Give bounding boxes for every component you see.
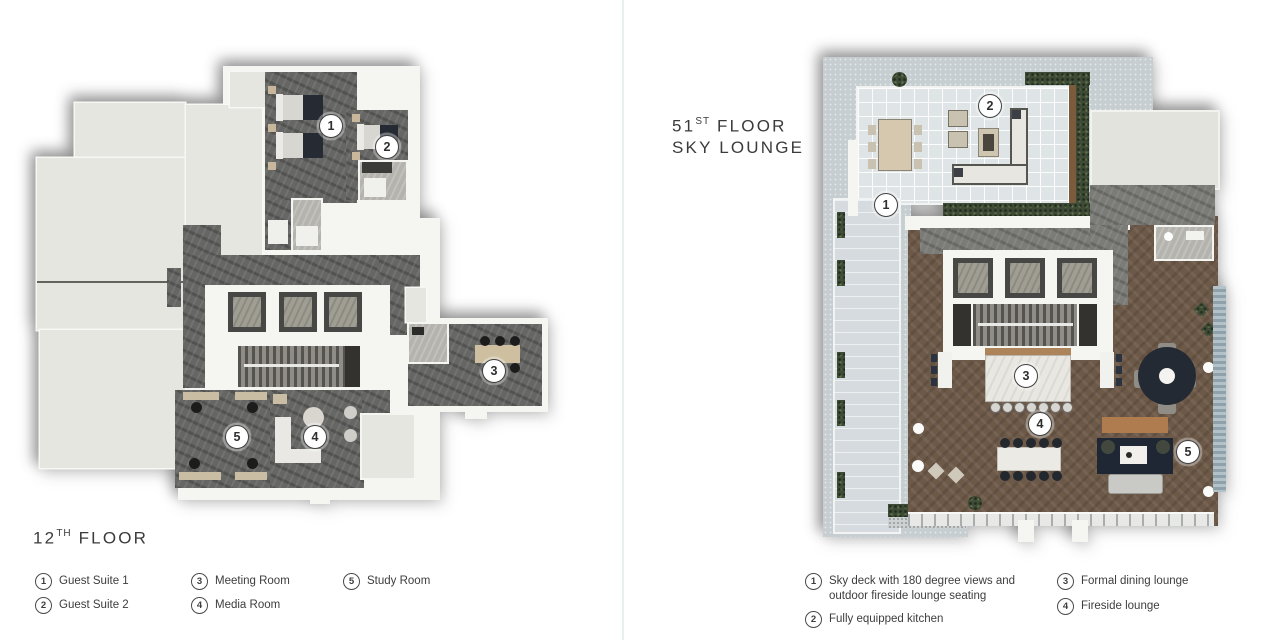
- nightstand: [352, 114, 360, 122]
- banquette: [1100, 352, 1114, 388]
- dining-chair: [1013, 471, 1023, 481]
- planter: [837, 260, 845, 286]
- right-plan-title: 51ST FLOOR SKY LOUNGE: [672, 112, 804, 158]
- planter: [837, 400, 845, 426]
- column: [167, 268, 181, 307]
- banquette-chair: [1116, 366, 1122, 374]
- legend-label: Fully equipped kitchen: [829, 611, 943, 627]
- bar-stool: [990, 402, 1001, 413]
- legend-label: Guest Suite 2: [59, 597, 129, 613]
- floorplan-12th-floor: 1 2 3 4 5: [28, 58, 553, 508]
- legend-item-guest-suite-1: 1 Guest Suite 1: [35, 573, 129, 590]
- stair-landing: [1079, 304, 1097, 346]
- banquette: [938, 352, 952, 388]
- planter: [837, 472, 845, 498]
- elevator-cell: [1057, 258, 1097, 298]
- storage-room: [362, 415, 414, 478]
- desk-chair: [191, 402, 202, 413]
- table-decor: [1126, 452, 1132, 458]
- outdoor-chair: [914, 142, 922, 152]
- planter-soil: [1069, 85, 1076, 203]
- planter: [837, 212, 845, 238]
- legend-item-media-room: 4 Media Room: [191, 597, 280, 614]
- outdoor-chair: [868, 159, 876, 169]
- bed-headboard: [357, 124, 364, 150]
- sofa: [275, 449, 321, 463]
- legend-number: 2: [805, 611, 822, 628]
- desk-chair: [189, 458, 200, 469]
- legend-number: 3: [1057, 573, 1074, 590]
- potted-plant: [968, 496, 982, 510]
- legend-label: Guest Suite 1: [59, 573, 129, 589]
- shrub: [892, 72, 907, 87]
- banquette-chair: [931, 366, 937, 374]
- floorplan-51st-floor: 1 2 3 4 5: [820, 52, 1230, 544]
- nightstand: [268, 86, 276, 94]
- left-title-number: 12: [33, 529, 56, 548]
- kitchen-counter: [985, 348, 1071, 355]
- desk: [235, 392, 267, 400]
- elevator-cell: [279, 292, 317, 332]
- outdoor-dining-table: [878, 119, 912, 171]
- unit-area: [37, 158, 185, 330]
- bed-duvet: [303, 95, 323, 120]
- bar-stool: [1050, 402, 1061, 413]
- legend-number: 5: [343, 573, 360, 590]
- legend-label: Sky deck with 180 degree views and outdo…: [829, 573, 1025, 604]
- hedge: [1076, 72, 1089, 207]
- bar-stool: [1062, 402, 1073, 413]
- legend-number: 4: [1057, 598, 1074, 615]
- legend-item-sky-deck: 1 Sky deck with 180 degree views and out…: [805, 573, 1025, 604]
- outdoor-chair: [868, 142, 876, 152]
- elevator-cell: [1005, 258, 1045, 298]
- vanity: [1186, 231, 1204, 240]
- bath-fixture: [344, 406, 357, 419]
- elevator-cell: [953, 258, 993, 298]
- plan-marker-2: 2: [978, 94, 1002, 118]
- left-title-ordinal: TH: [56, 528, 71, 539]
- legend-label: Meeting Room: [215, 573, 290, 589]
- wall-tab: [310, 496, 330, 504]
- right-title-number: 51: [672, 117, 695, 136]
- bed-headboard: [276, 132, 283, 159]
- cushion: [954, 168, 963, 177]
- dining-chair: [1000, 471, 1010, 481]
- bed-headboard: [276, 94, 283, 121]
- plan-marker-4: 4: [303, 425, 327, 449]
- deck-wall: [848, 140, 858, 216]
- elevator-cell: [228, 292, 266, 332]
- panel-divider: [622, 0, 624, 640]
- deck-pot: [912, 460, 924, 472]
- desk-chair: [247, 402, 258, 413]
- toilet: [1164, 232, 1173, 241]
- plan-marker-3: 3: [1014, 364, 1038, 388]
- right-title-line2: SKY LOUNGE: [672, 138, 804, 157]
- legend-label: Study Room: [367, 573, 430, 589]
- legend-number: 1: [35, 573, 52, 590]
- desk: [179, 472, 221, 480]
- bar-stool: [1026, 402, 1037, 413]
- bath-fixture: [344, 429, 357, 442]
- corridor: [1090, 185, 1215, 225]
- bar-stool: [1002, 402, 1013, 413]
- chair: [495, 336, 505, 346]
- legend-item-meeting-room: 3 Meeting Room: [191, 573, 290, 590]
- coffee-table: [1120, 446, 1147, 464]
- plan-marker-4: 4: [1028, 412, 1052, 436]
- bathtub: [296, 226, 318, 246]
- window-wall: [908, 512, 1214, 526]
- stair-rail: [244, 364, 339, 367]
- legend-number: 4: [191, 597, 208, 614]
- nightstand: [268, 162, 276, 170]
- plan-marker-2: 2: [375, 135, 399, 159]
- banquette-chair: [931, 354, 937, 362]
- legend-item-guest-suite-2: 2 Guest Suite 2: [35, 597, 129, 614]
- outdoor-armchair: [948, 131, 968, 148]
- legend-item-kitchen: 2 Fully equipped kitchen: [805, 611, 943, 628]
- dining-table: [997, 447, 1061, 471]
- wall-tab: [237, 488, 259, 500]
- plan-marker-1: 1: [319, 114, 343, 138]
- right-title-word: FLOOR: [717, 117, 787, 136]
- passage: [406, 288, 426, 322]
- dining-chair: [1013, 438, 1023, 448]
- dining-chair: [1039, 471, 1049, 481]
- vanity: [412, 327, 424, 335]
- desk: [183, 392, 219, 400]
- bathtub: [268, 220, 288, 244]
- round-table-center: [1159, 368, 1175, 384]
- unit-area: [75, 103, 185, 163]
- dresser: [362, 162, 392, 173]
- floorplan-brochure-page: 1 2 3 4 5 12TH FLOOR 1 Guest Suite 1 2 G…: [0, 0, 1280, 640]
- elevator-cell: [324, 292, 362, 332]
- lounge-armchair: [1101, 440, 1115, 454]
- bar-stool: [1014, 402, 1025, 413]
- chair: [510, 336, 520, 346]
- bathtub: [364, 178, 386, 197]
- left-title-word: FLOOR: [79, 529, 149, 548]
- desk-chair: [247, 458, 258, 469]
- legend-number: 3: [191, 573, 208, 590]
- dining-chair: [1026, 438, 1036, 448]
- dining-chair: [1052, 471, 1062, 481]
- left-plan-title: 12TH FLOOR: [33, 524, 148, 549]
- cabinet: [273, 394, 287, 404]
- wood-console: [1102, 417, 1168, 433]
- outdoor-chair: [914, 159, 922, 169]
- outdoor-chair: [914, 125, 922, 135]
- fire-pit: [983, 134, 994, 151]
- outdoor-sofa: [952, 164, 1028, 185]
- banquette-chair: [931, 378, 937, 386]
- right-title-ordinal: ST: [695, 116, 710, 127]
- chair: [480, 336, 490, 346]
- hedge: [943, 203, 1090, 216]
- planter: [837, 352, 845, 378]
- unit-divider-line: [37, 281, 184, 283]
- lounge-armchair: [1156, 440, 1170, 454]
- legend-item-study-room: 5 Study Room: [343, 573, 430, 590]
- plan-marker-3: 3: [482, 359, 506, 383]
- banquette-chair: [1116, 378, 1122, 386]
- nightstand: [268, 124, 276, 132]
- unit-area: [40, 330, 185, 468]
- legend-item-formal-dining: 3 Formal dining lounge: [1057, 573, 1188, 590]
- plan-marker-5: 5: [225, 425, 249, 449]
- legend-label: Media Room: [215, 597, 280, 613]
- plan-marker-5: 5: [1176, 440, 1200, 464]
- pier: [1018, 520, 1034, 542]
- legend-number: 1: [805, 573, 822, 590]
- floor-lamp: [913, 423, 924, 434]
- dining-chair: [1000, 438, 1010, 448]
- corridor: [362, 390, 390, 415]
- nightstand: [352, 152, 360, 160]
- stair-rail: [978, 323, 1073, 326]
- dining-chair: [1039, 438, 1049, 448]
- legend-item-fireside-lounge: 4 Fireside lounge: [1057, 598, 1160, 615]
- mechanical-room: [1092, 112, 1218, 188]
- pier: [1072, 520, 1088, 542]
- cushion: [1012, 110, 1021, 119]
- chair: [510, 363, 520, 373]
- desk: [235, 472, 267, 480]
- lounge-sofa: [1108, 474, 1163, 494]
- dining-chair: [1026, 471, 1036, 481]
- banquette-chair: [1116, 354, 1122, 362]
- bed-duvet: [303, 133, 323, 158]
- outdoor-chair: [868, 125, 876, 135]
- outdoor-armchair: [948, 110, 968, 127]
- plan-marker-1: 1: [874, 193, 898, 217]
- dining-chair: [1052, 438, 1062, 448]
- stair-landing: [953, 304, 971, 346]
- wall-tab: [465, 410, 487, 419]
- legend-label: Fireside lounge: [1081, 598, 1160, 614]
- stair-landing: [345, 346, 360, 387]
- window-louvers: [1213, 286, 1226, 492]
- legend-label: Formal dining lounge: [1081, 573, 1188, 589]
- legend-number: 2: [35, 597, 52, 614]
